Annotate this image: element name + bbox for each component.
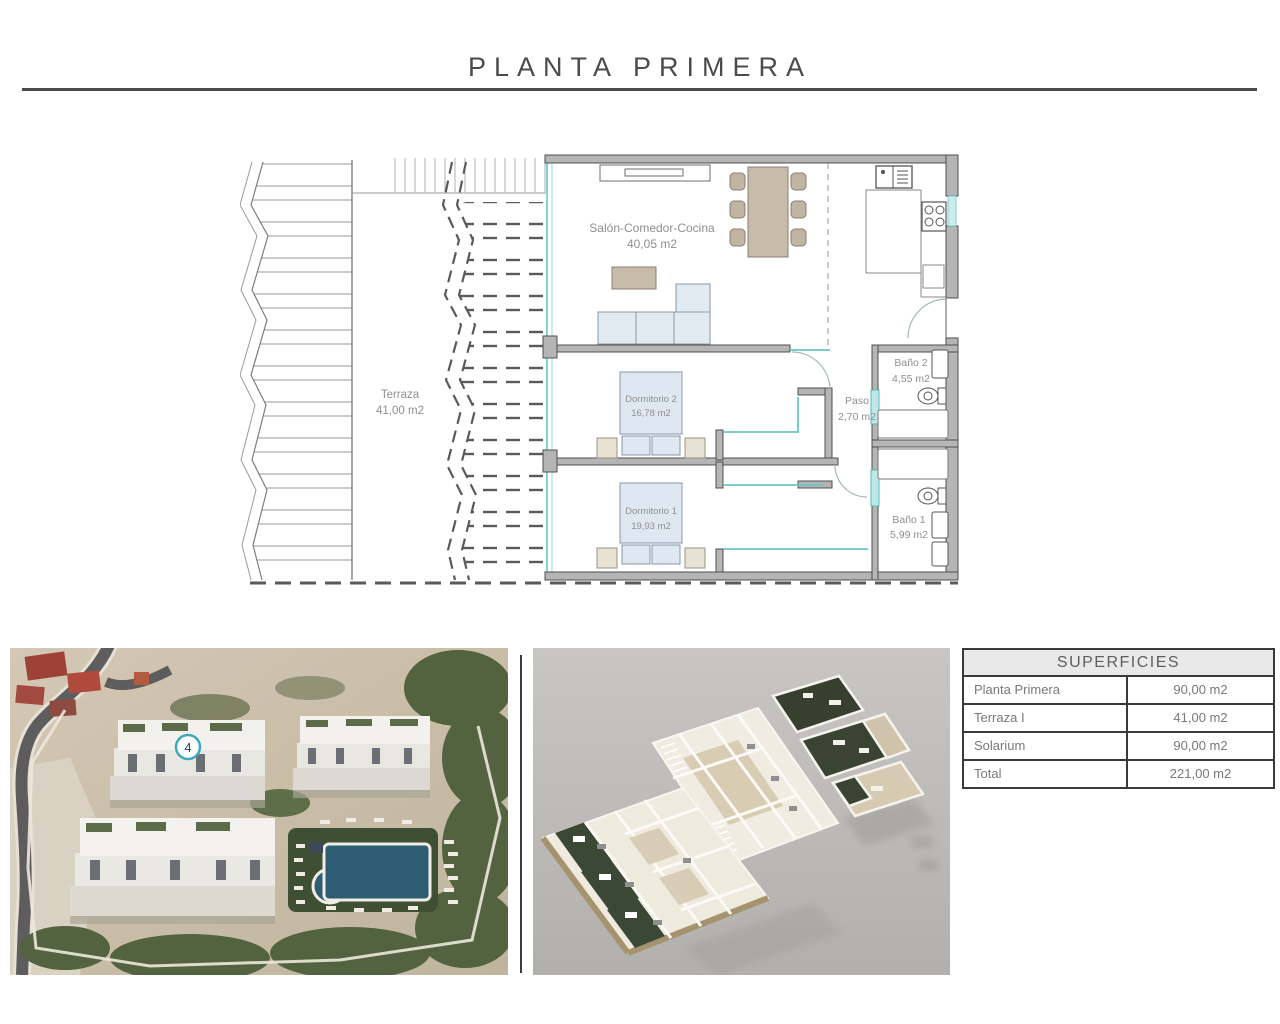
room-area-terraza: 41,00 m2 — [376, 405, 424, 417]
room-area-bano2: 4,55 m2 — [892, 373, 930, 385]
aerial-site-photo: 4 — [10, 648, 508, 975]
table-row: Planta Primera 90,00 m2 — [964, 677, 1273, 703]
bathroom1-fixtures — [878, 449, 948, 566]
row-label: Solarium — [964, 733, 1128, 759]
row-label: Planta Primera — [964, 677, 1128, 703]
room-area-bano1: 5,99 m2 — [890, 529, 928, 541]
table-row: Solarium 90,00 m2 — [964, 731, 1273, 759]
title-rule — [22, 88, 1257, 91]
building-c — [70, 818, 275, 924]
table-row: Total 221,00 m2 — [964, 759, 1273, 787]
kitchen-fixtures — [866, 166, 946, 297]
image-divider — [520, 655, 522, 973]
room-label-terraza: Terraza — [381, 389, 420, 401]
floor-plan-drawing: Terraza 41,00 m2 Salón-Comedor-Cocina 40… — [240, 140, 980, 600]
room-label-bano1: Baño 1 — [892, 514, 925, 526]
room-label-dormitorio2: Dormitorio 2 — [625, 394, 677, 405]
room-area-salon: 40,05 m2 — [627, 237, 677, 251]
room-label-paso: Paso — [845, 395, 869, 407]
room-label-dormitorio1: Dormitorio 1 — [625, 506, 677, 517]
building-a — [110, 720, 265, 808]
brochure-page: PLANTA PRIMERA — [0, 0, 1280, 1024]
page-title: PLANTA PRIMERA — [0, 52, 1280, 83]
row-value: 90,00 m2 — [1128, 733, 1273, 759]
room-label-bano2: Baño 2 — [894, 357, 927, 369]
row-label: Total — [964, 761, 1128, 787]
terrain-hatch — [240, 160, 352, 580]
glass-facade — [547, 163, 552, 572]
axonometric-render — [533, 648, 950, 975]
building-b — [293, 716, 430, 798]
row-label: Terraza I — [964, 705, 1128, 731]
room-area-dormitorio1: 19,93 m2 — [631, 521, 671, 532]
stairs-hatch — [352, 158, 548, 193]
living-furniture — [598, 165, 806, 344]
right-wall-window — [948, 196, 956, 226]
wardrobe-lines — [723, 350, 868, 549]
pergola-dashes — [443, 162, 545, 580]
room-label-salon: Salón-Comedor-Cocina — [589, 221, 715, 235]
pool-area — [288, 818, 458, 912]
room-area-dormitorio2: 16,78 m2 — [631, 408, 671, 419]
row-value: 41,00 m2 — [1128, 705, 1273, 731]
row-value: 90,00 m2 — [1128, 677, 1273, 703]
surfaces-table-header: SUPERFICIES — [964, 650, 1273, 677]
row-value: 221,00 m2 — [1128, 761, 1273, 787]
unit-badge: 4 — [176, 735, 200, 759]
table-row: Terraza I 41,00 m2 — [964, 703, 1273, 731]
unit-badge-number: 4 — [184, 740, 191, 755]
room-area-paso: 2,70 m2 — [838, 411, 876, 423]
surfaces-table: SUPERFICIES Planta Primera 90,00 m2 Terr… — [962, 648, 1275, 789]
